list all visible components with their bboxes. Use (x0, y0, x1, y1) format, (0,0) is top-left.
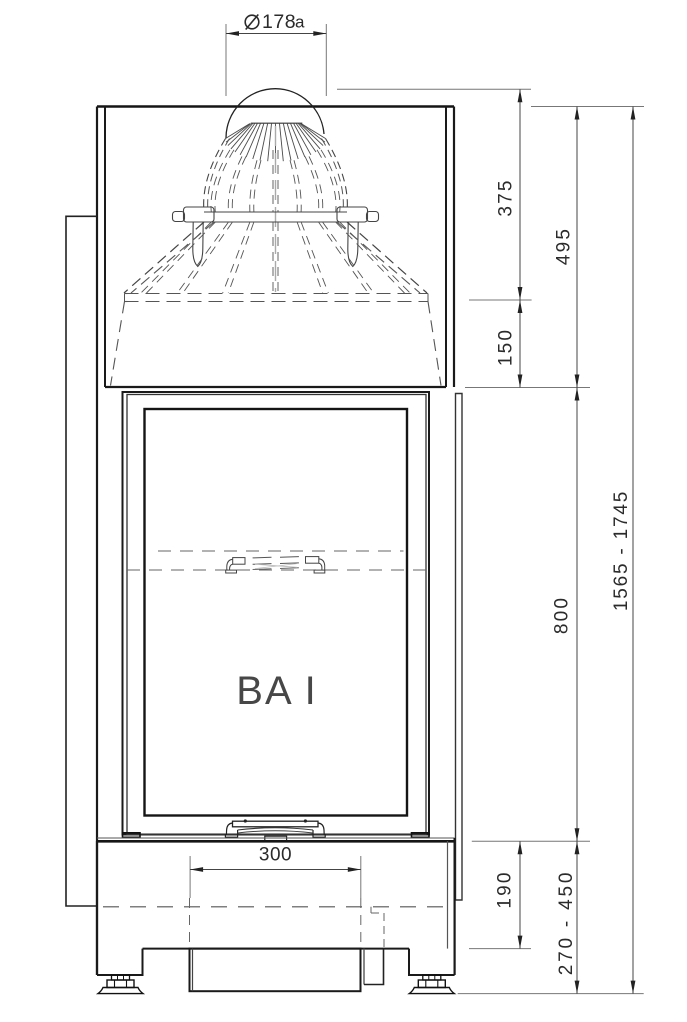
svg-text:800: 800 (552, 596, 573, 634)
svg-text:150: 150 (496, 328, 517, 366)
svg-text:300: 300 (259, 845, 292, 866)
svg-text:270 - 450: 270 - 450 (556, 870, 577, 976)
svg-text:178: 178 (262, 11, 296, 33)
svg-text:190: 190 (495, 870, 516, 908)
svg-text:1565 - 1745: 1565 - 1745 (611, 490, 632, 611)
svg-text:375: 375 (496, 178, 517, 216)
svg-text:a: a (295, 13, 305, 32)
svg-text:495: 495 (554, 227, 575, 265)
svg-text:BA I: BA I (236, 669, 317, 713)
